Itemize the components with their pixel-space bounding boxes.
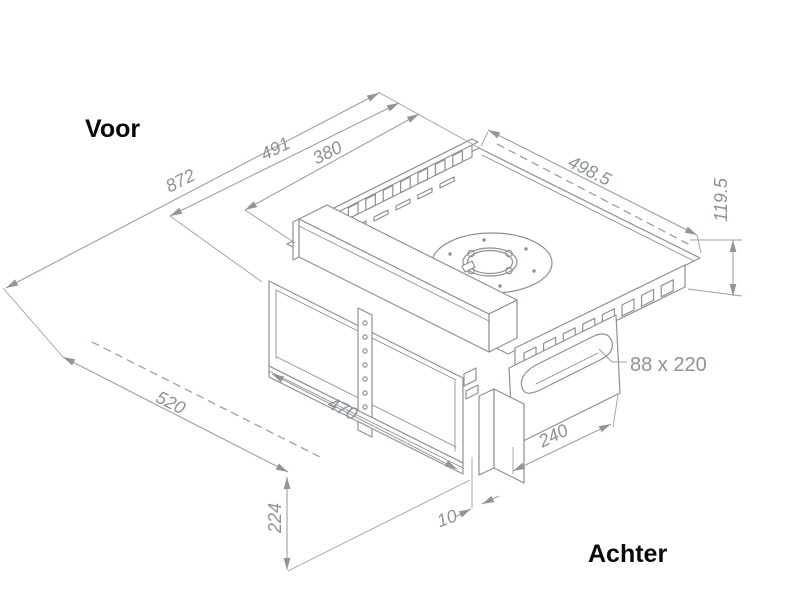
dim-491-label: 491 [257,133,293,164]
isometric-drawing: 872 491 380 498.5 119.5 88 x 220 520 470… [0,0,789,599]
dim-872-label: 872 [162,165,198,196]
dim-224-label: 224 [265,503,285,534]
dim-119-5-label: 119.5 [711,177,731,222]
mounting-tab [466,385,478,399]
dim-520-label: 520 [153,387,189,418]
dim-10-line [455,509,471,517]
dim-498-5-label: 498.5 [565,152,615,190]
dim-380-label: 380 [309,137,345,168]
dim-10-label: 10 [434,506,460,532]
extension-line [613,395,618,427]
extractor-unit [269,139,700,483]
extension-line [378,92,483,150]
front-side-label: Voor [85,115,140,143]
extension-line [481,132,488,146]
extension-line [697,235,701,253]
dim-10-line [482,496,499,504]
dim-88x220-label: 88 x 220 [630,354,707,376]
back-side-label: Achter [588,540,667,568]
extension-line [245,210,295,243]
technical-drawing-page: 872 491 380 498.5 119.5 88 x 220 520 470… [0,0,789,599]
extension-line [3,288,63,357]
mounting-tab [464,368,476,386]
extension-line [688,289,742,296]
extension-line [170,216,262,282]
